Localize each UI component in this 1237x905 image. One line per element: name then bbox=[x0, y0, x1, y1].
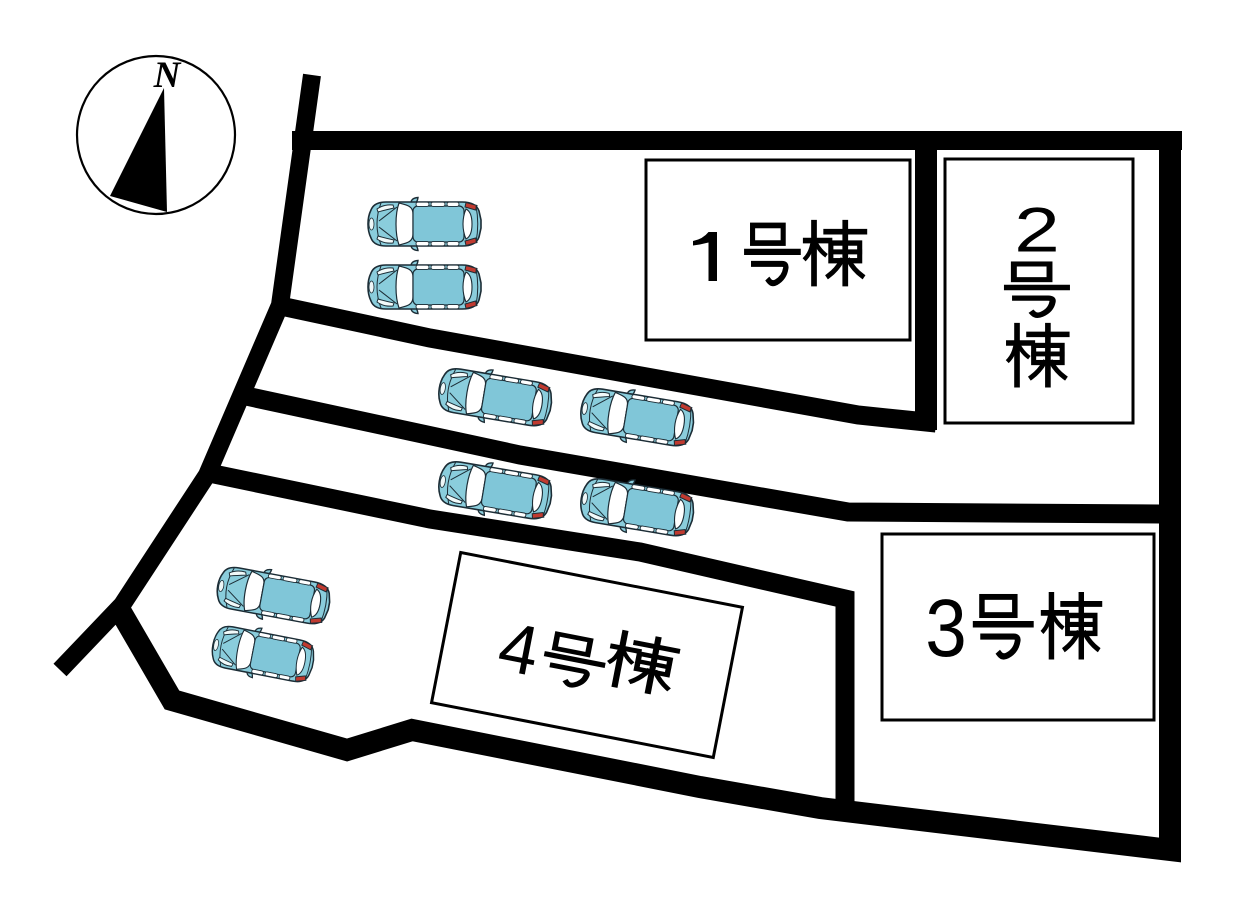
svg-text:3: 3 bbox=[925, 582, 966, 674]
svg-text:2: 2 bbox=[1014, 195, 1060, 266]
svg-text:N: N bbox=[153, 55, 182, 96]
